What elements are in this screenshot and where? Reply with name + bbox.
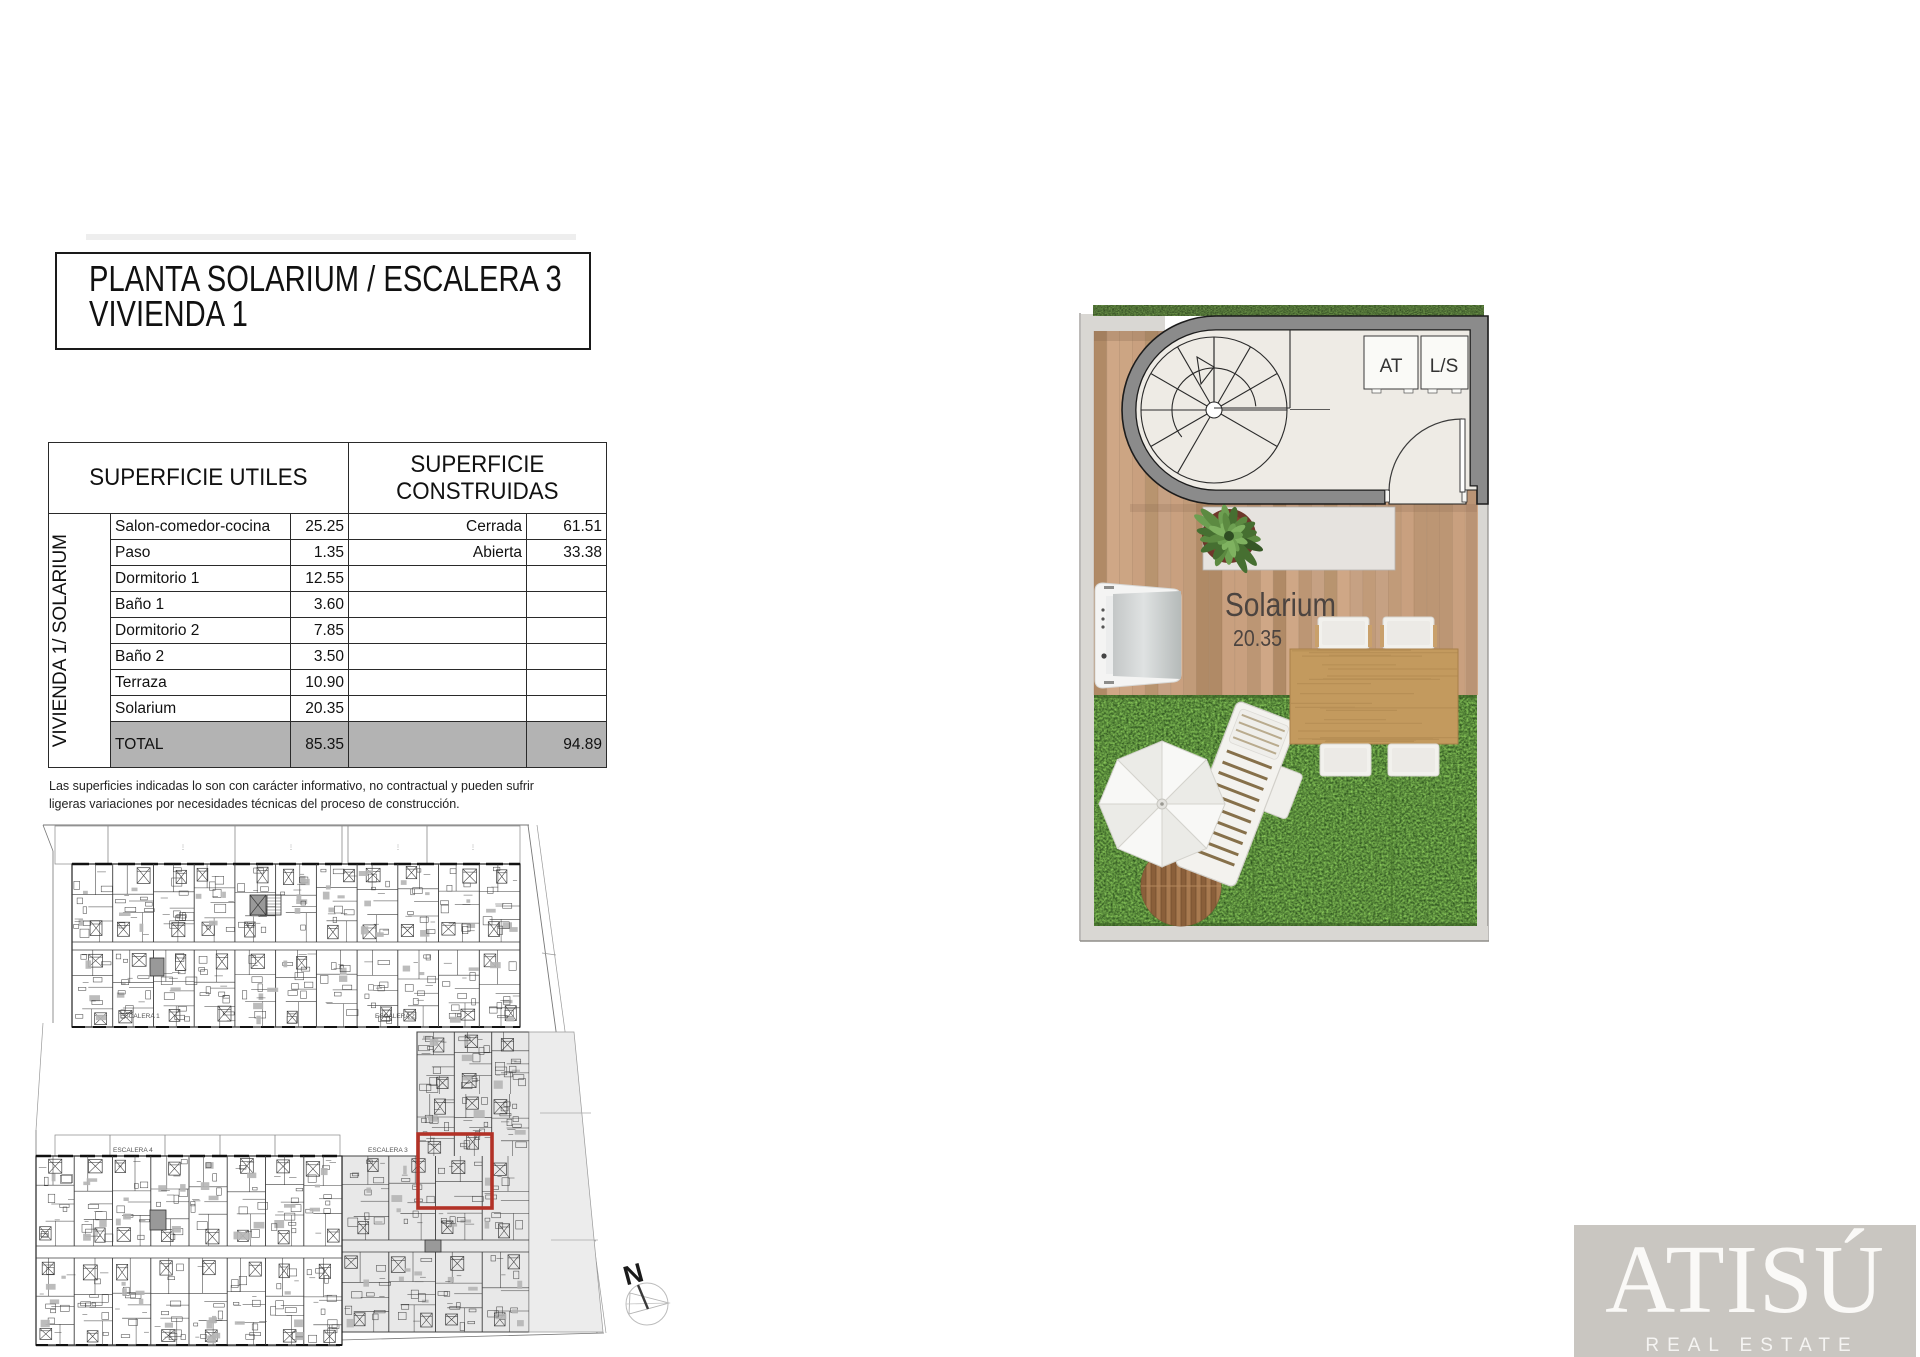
svg-text:⋮: ⋮ (180, 845, 186, 851)
svg-text:ESCALERA 1: ESCALERA 1 (120, 1013, 160, 1020)
svg-text:ESCALERA 4: ESCALERA 4 (113, 1147, 153, 1154)
svg-text:ESCALERA 3: ESCALERA 3 (368, 1147, 408, 1154)
svg-text:Solarium: Solarium (1225, 586, 1336, 623)
svg-text:20.35: 20.35 (1233, 625, 1282, 651)
svg-text:N: N (620, 1257, 647, 1291)
svg-text:AT: AT (1380, 356, 1403, 377)
svg-text:⋮: ⋮ (395, 845, 401, 851)
svg-text:⋮: ⋮ (288, 845, 294, 851)
svg-text:ESCALERA 2: ESCALERA 2 (375, 1013, 415, 1020)
svg-text:L/S: L/S (1430, 356, 1459, 377)
svg-text:⋮: ⋮ (470, 845, 476, 851)
